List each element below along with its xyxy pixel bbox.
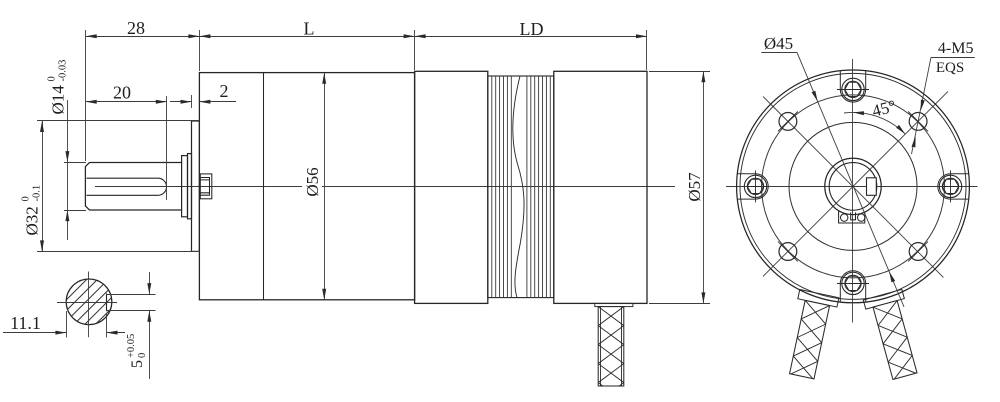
svg-text:Ø57: Ø57 bbox=[685, 172, 704, 202]
svg-text:45°: 45° bbox=[870, 96, 898, 121]
svg-text:L: L bbox=[304, 19, 315, 39]
svg-text:-0.1: -0.1 bbox=[32, 185, 43, 202]
svg-text:Ø32: Ø32 bbox=[23, 206, 42, 235]
svg-text:EQS: EQS bbox=[936, 60, 964, 76]
svg-text:Ø14: Ø14 bbox=[49, 85, 68, 115]
svg-text:2: 2 bbox=[220, 81, 229, 101]
svg-text:Ø56: Ø56 bbox=[303, 167, 322, 196]
svg-text:0: 0 bbox=[137, 353, 148, 358]
svg-text:5: 5 bbox=[129, 360, 146, 368]
svg-text:0: 0 bbox=[47, 76, 58, 81]
svg-text:Ø45: Ø45 bbox=[764, 34, 793, 53]
svg-text:-0.03: -0.03 bbox=[58, 60, 69, 82]
svg-text:0: 0 bbox=[21, 196, 32, 201]
svg-text:20: 20 bbox=[113, 83, 131, 103]
svg-text:4-M5: 4-M5 bbox=[938, 40, 974, 57]
svg-text:LD: LD bbox=[520, 19, 544, 39]
svg-text:+0.05: +0.05 bbox=[126, 334, 137, 358]
svg-text:11.1: 11.1 bbox=[10, 313, 41, 333]
svg-text:28: 28 bbox=[127, 18, 145, 38]
